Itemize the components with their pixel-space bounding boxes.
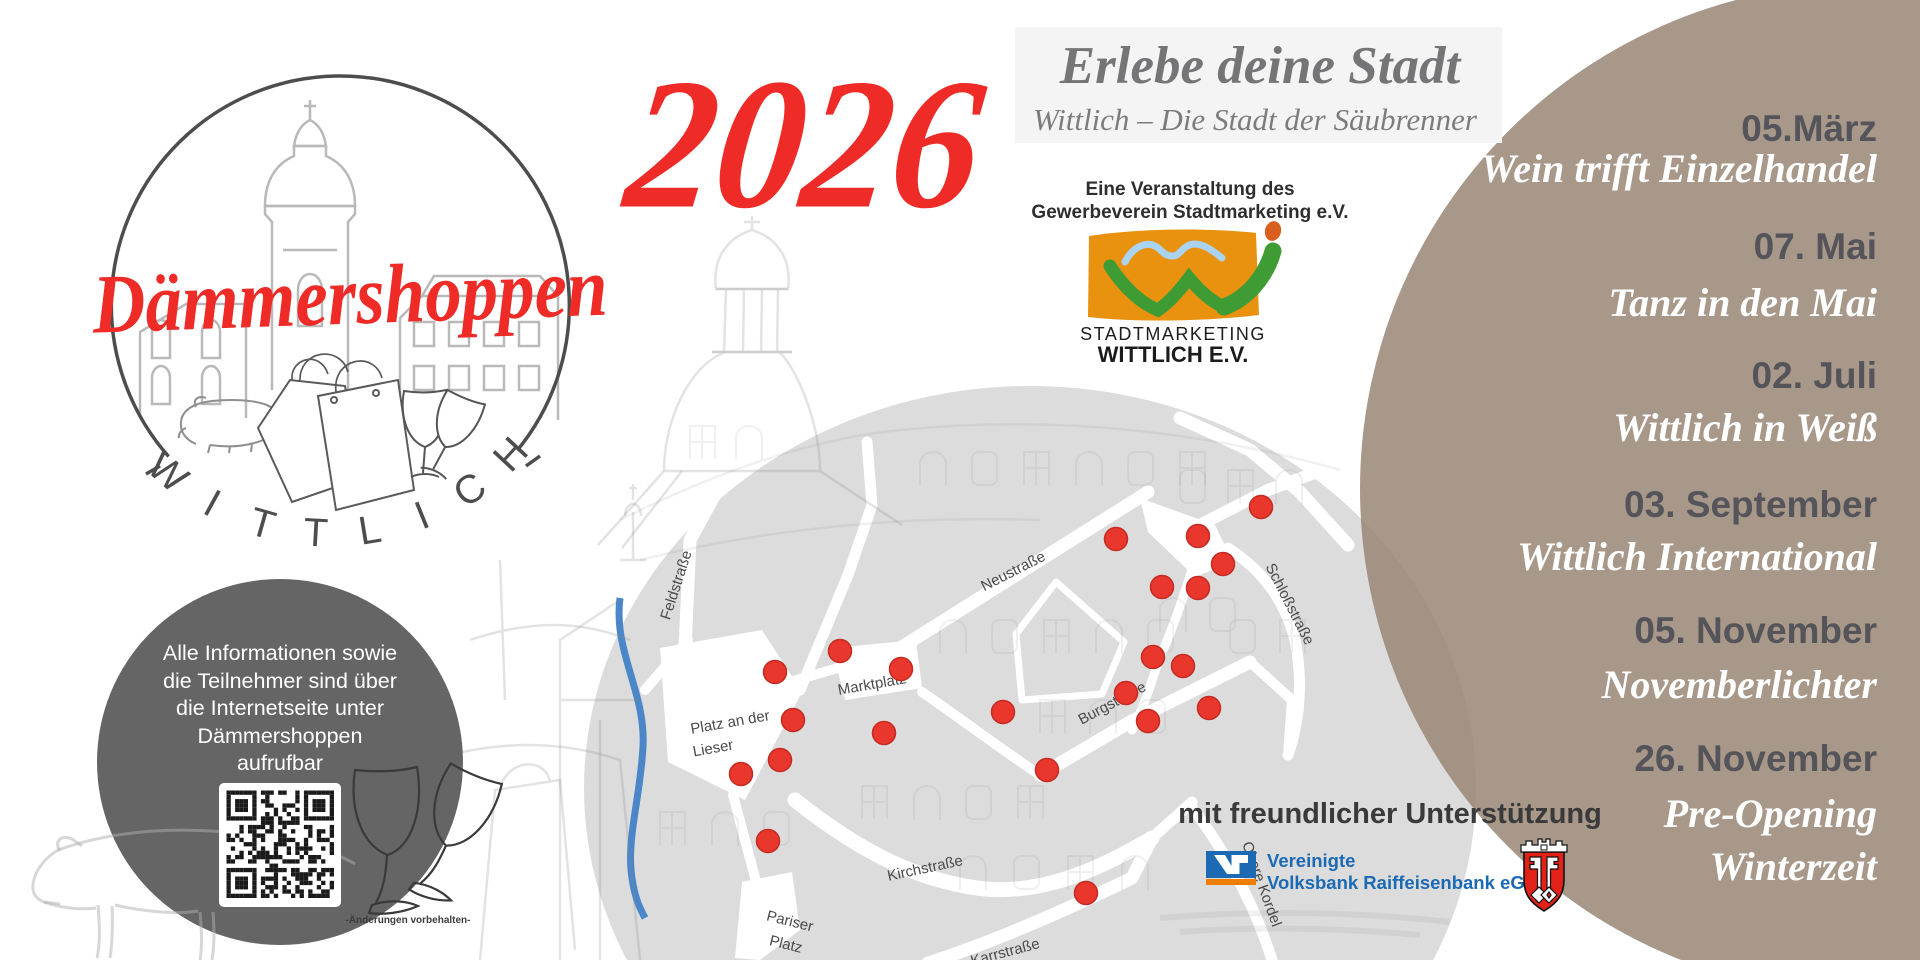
svg-text:Lieser: Lieser (691, 737, 734, 761)
svg-text:Kirchstraße: Kirchstraße (886, 852, 965, 885)
svg-text:Karrstraße: Karrstraße (969, 935, 1042, 960)
svg-text:Schloßstraße: Schloßstraße (1262, 561, 1318, 648)
svg-text:Neustraße: Neustraße (978, 548, 1048, 595)
svg-text:Platz an der: Platz an der (689, 707, 771, 738)
svg-text:Feldstraße: Feldstraße (657, 548, 695, 621)
svg-text:Pariser: Pariser (765, 907, 815, 935)
svg-text:Platz: Platz (768, 932, 804, 957)
